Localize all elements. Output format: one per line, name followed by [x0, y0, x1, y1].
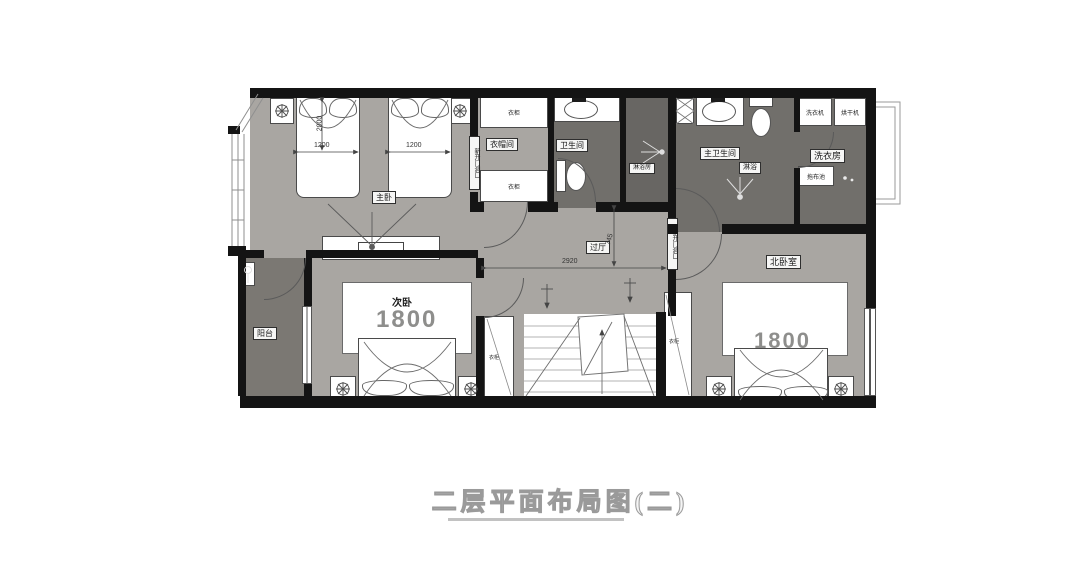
- toilet-tank: [749, 97, 773, 107]
- plan-title: 二层平面布局图(二): [420, 482, 700, 518]
- pillow: [409, 380, 454, 396]
- dim-master-bed-len: 2000: [316, 116, 323, 132]
- washing-machine: 洗衣机: [798, 98, 832, 126]
- wall: [794, 96, 800, 132]
- wall: [228, 126, 240, 134]
- wall: [596, 202, 676, 212]
- pillow: [421, 98, 449, 118]
- room-label-laundry: 洗衣房: [810, 149, 845, 163]
- dryer: 烘干机: [834, 98, 866, 126]
- wardrobe-label: 衣柜: [507, 182, 521, 191]
- room-label-north: 北卧室: [766, 255, 801, 269]
- pillow: [362, 380, 407, 396]
- pillow: [329, 98, 357, 118]
- dim-hall-width: 2920: [562, 258, 578, 265]
- wall: [306, 250, 478, 258]
- wall-annotation: 新开门洞口: [469, 136, 480, 190]
- room-label-balcony: 阳台: [253, 327, 277, 340]
- wall: [668, 88, 676, 218]
- wall: [656, 312, 666, 398]
- wall: [470, 202, 484, 212]
- floor-staircase: [524, 314, 656, 398]
- wall: [250, 88, 262, 98]
- wall: [528, 202, 558, 212]
- wall: [548, 96, 554, 206]
- window: [302, 306, 312, 384]
- pillow: [391, 98, 419, 118]
- wall: [470, 192, 478, 202]
- wardrobe-label: 衣柜: [489, 354, 499, 361]
- mop-sink: 拖布池: [798, 166, 834, 186]
- toilet-bowl: [751, 108, 771, 137]
- wall: [304, 384, 312, 398]
- window: [864, 308, 876, 396]
- bed-size-second: 1800: [376, 306, 437, 334]
- wardrobe-label: 衣柜: [669, 338, 679, 345]
- dim-master-bed-2: 1200: [406, 142, 422, 149]
- washer-label: 洗衣机: [805, 108, 825, 117]
- wall: [620, 96, 626, 206]
- wall: [866, 234, 876, 308]
- room-label-master: 主卧: [372, 191, 396, 204]
- room-label-bathroom: 卫生间: [556, 139, 588, 152]
- cabinet: [676, 98, 694, 124]
- wall: [722, 224, 876, 234]
- floor-shower-room: [626, 96, 674, 208]
- sink-basin: [564, 100, 598, 119]
- nightstand: [270, 98, 294, 124]
- room-label-master-bathroom: 主卫生间: [700, 147, 740, 160]
- wall: [476, 258, 484, 278]
- wardrobe-cabinet: 衣柜: [480, 96, 548, 128]
- dim-master-bed-1: 1200: [314, 142, 330, 149]
- wall: [240, 396, 876, 408]
- mop-sink-label: 拖布池: [806, 172, 826, 181]
- wall: [470, 96, 478, 136]
- bed-size-north: 1800: [754, 328, 811, 354]
- room-label-shower: 淋浴房: [629, 163, 655, 174]
- wall: [240, 250, 264, 258]
- floor-plan-canvas: 衣柜 衣柜 洗衣机 烘干机 拖布池 衣柜 衣柜: [0, 0, 1074, 576]
- wall: [238, 250, 246, 396]
- label-shower-area: 淋浴: [739, 162, 761, 174]
- title-underline: [448, 518, 624, 521]
- dryer-label: 烘干机: [840, 108, 860, 117]
- sink-basin: [702, 101, 736, 122]
- wall: [668, 270, 676, 316]
- bay-window-right: [876, 102, 900, 204]
- wall: [866, 88, 876, 234]
- wall: [794, 168, 800, 230]
- wall: [476, 316, 484, 398]
- wardrobe-label: 衣柜: [507, 108, 521, 117]
- wall: [256, 88, 876, 98]
- room-label-cloakroom: 衣帽间: [486, 138, 518, 151]
- wardrobe-cabinet: 衣柜: [480, 170, 548, 202]
